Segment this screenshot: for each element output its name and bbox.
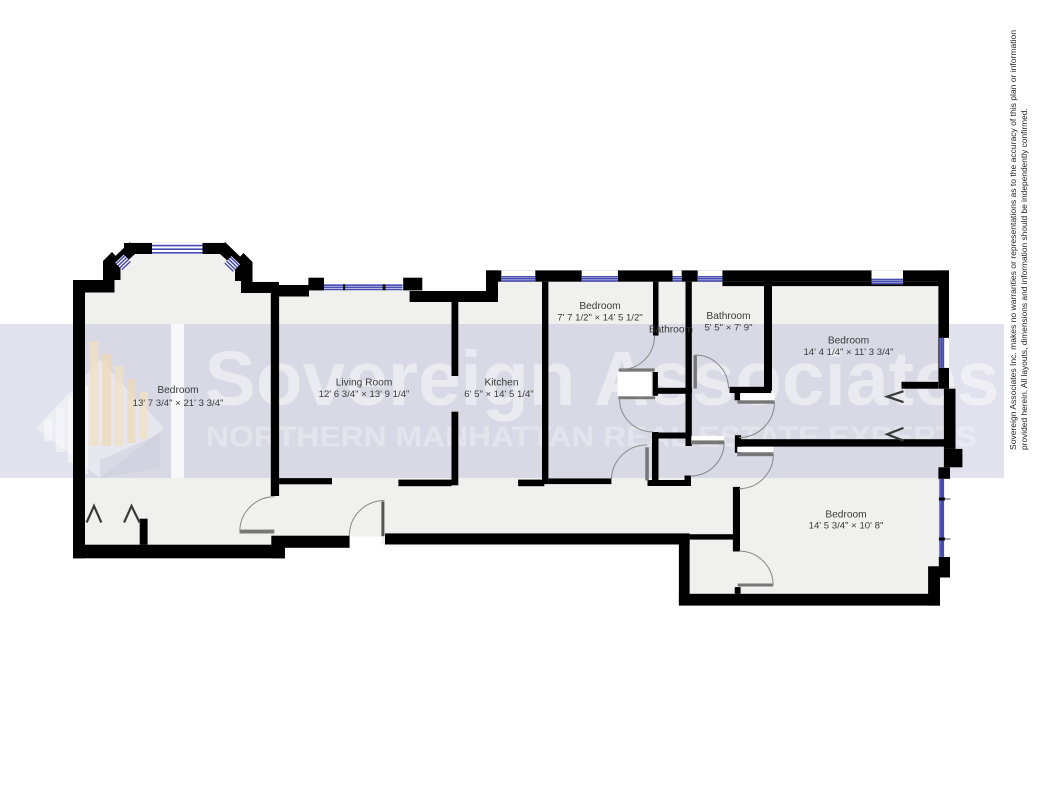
svg-text:13' 7 3/4" × 21' 3 3/4": 13' 7 3/4" × 21' 3 3/4" bbox=[133, 398, 224, 409]
svg-text:Bedroom: Bedroom bbox=[579, 301, 620, 312]
svg-text:Bathroom: Bathroom bbox=[649, 325, 693, 336]
svg-text:Living Room: Living Room bbox=[336, 378, 393, 389]
svg-text:Kitchen: Kitchen bbox=[485, 378, 519, 389]
svg-text:Bedroom: Bedroom bbox=[157, 385, 198, 396]
svg-text:Sovereign Associates Inc. make: Sovereign Associates Inc. makes no warra… bbox=[1008, 30, 1018, 450]
svg-text:5' 5" × 7' 9": 5' 5" × 7' 9" bbox=[704, 322, 752, 333]
svg-text:14' 4 1/4" × 11' 3 3/4": 14' 4 1/4" × 11' 3 3/4" bbox=[803, 347, 893, 358]
svg-text:6' 5" × 14' 5 1/4": 6' 5" × 14' 5 1/4" bbox=[464, 389, 533, 400]
svg-text:provided herein. All layouts,: provided herein. All layouts, dimensions… bbox=[1019, 108, 1029, 450]
svg-text:Bedroom: Bedroom bbox=[828, 336, 869, 347]
svg-text:12' 6 3/4" × 13' 9 1/4": 12' 6 3/4" × 13' 9 1/4" bbox=[319, 389, 410, 400]
svg-text:Bathroom: Bathroom bbox=[706, 311, 750, 322]
svg-text:7' 7 1/2" × 14' 5 1/2": 7' 7 1/2" × 14' 5 1/2" bbox=[557, 313, 642, 324]
svg-text:14' 5 3/4" × 10' 8": 14' 5 3/4" × 10' 8" bbox=[809, 521, 884, 532]
svg-text:Bedroom: Bedroom bbox=[825, 510, 866, 521]
svg-text:NORTHERN MANHATTAN REAL ESTATE: NORTHERN MANHATTAN REAL ESTATE EXPERTS bbox=[206, 422, 977, 454]
